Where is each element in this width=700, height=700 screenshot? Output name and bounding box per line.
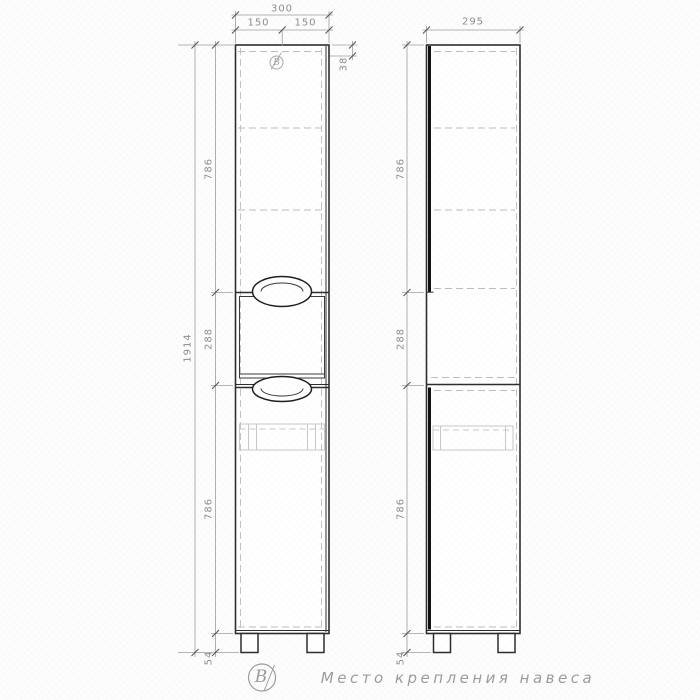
front-lower-handle bbox=[253, 377, 312, 402]
side-leg-left bbox=[434, 634, 451, 653]
dim-label-front-leg-height: 54 bbox=[204, 651, 215, 666]
hanger-marker-letter: В bbox=[273, 58, 280, 68]
dim-label-side-bottom-section: 786 bbox=[396, 498, 407, 520]
dim-label-front-right-half: 150 bbox=[294, 18, 316, 29]
drawing-linework bbox=[0, 0, 700, 700]
dim-label-front-top-section: 786 bbox=[204, 158, 215, 180]
dim-label-side-middle-section: 288 bbox=[396, 328, 407, 350]
front-upper-handle bbox=[253, 277, 312, 307]
front-leg-right bbox=[307, 634, 324, 653]
side-view bbox=[427, 45, 521, 653]
legend-marker-letter: В bbox=[255, 667, 268, 687]
dim-label-front-total-width: 300 bbox=[271, 4, 293, 15]
dim-label-hanger-offset: 38 bbox=[339, 57, 350, 72]
dim-label-side-leg-height: 54 bbox=[396, 651, 407, 666]
side-leg-right bbox=[498, 634, 515, 653]
dim-label-side-top-section: 786 bbox=[396, 158, 407, 180]
dim-label-overall-height: 1914 bbox=[183, 333, 194, 362]
front-carcass bbox=[236, 45, 330, 634]
front-leg-left bbox=[241, 634, 258, 653]
technical-drawing-cabinet: 300 150 150 38 1914 786 288 786 54 295 7… bbox=[0, 0, 700, 700]
dim-label-front-left-half: 150 bbox=[247, 18, 269, 29]
front-view bbox=[236, 45, 330, 653]
side-carcass bbox=[427, 45, 521, 634]
dim-label-front-middle-section: 288 bbox=[204, 328, 215, 350]
legend-caption: Место крепления навеса bbox=[321, 669, 595, 687]
dim-label-side-depth: 295 bbox=[462, 17, 484, 28]
dim-label-front-bottom-section: 786 bbox=[204, 498, 215, 520]
